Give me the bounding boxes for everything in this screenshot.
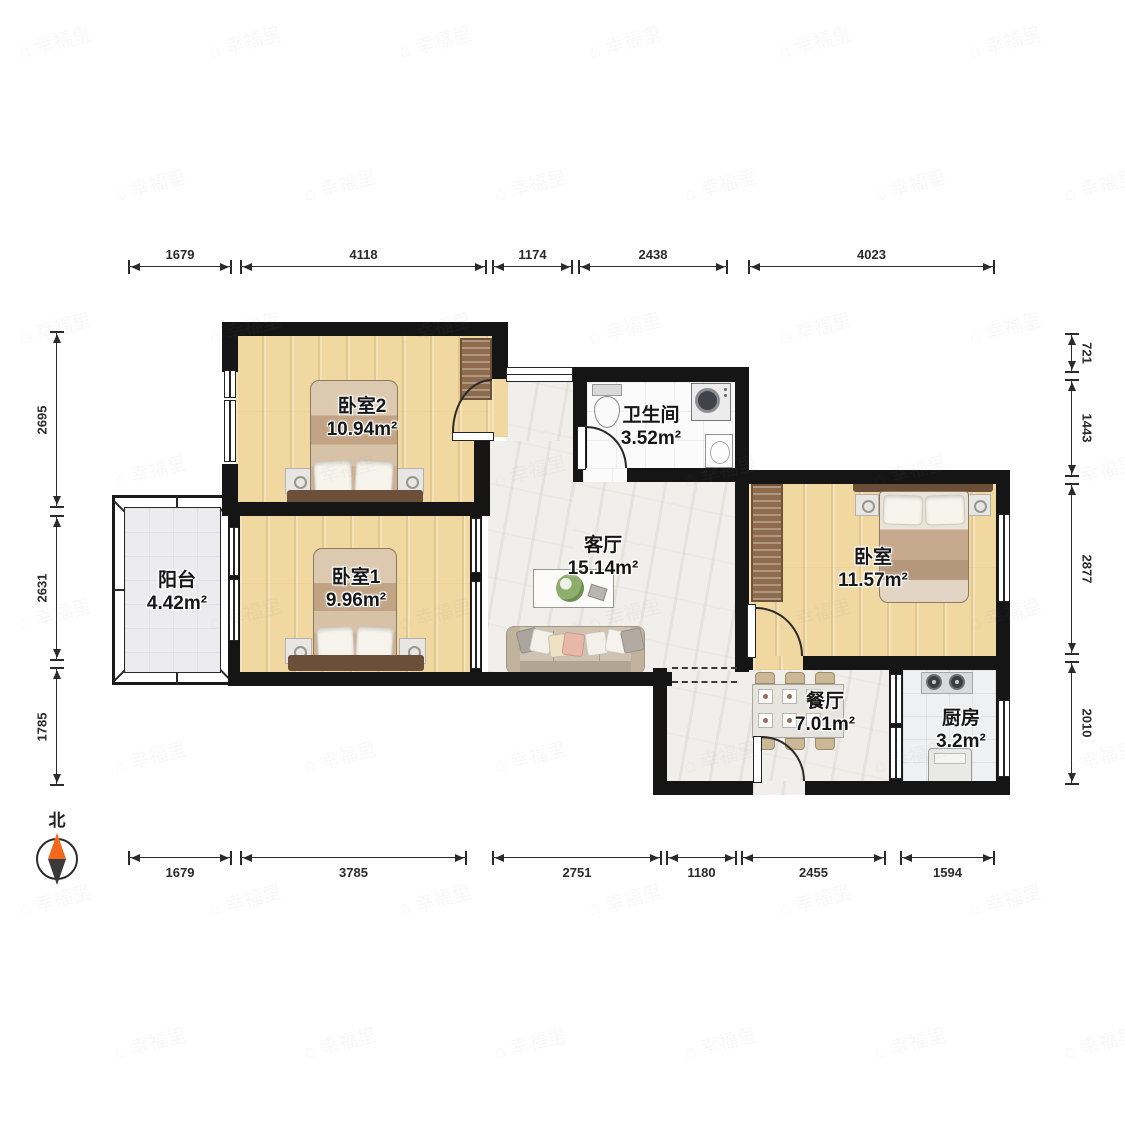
a — [650, 854, 659, 862]
nightstand — [967, 494, 991, 516]
watermark: ⌂ 幸福里 — [16, 591, 94, 635]
dimension-value: 2438 — [578, 247, 728, 262]
room-name: 餐厅 — [795, 690, 855, 713]
t — [230, 260, 232, 274]
room-area: 4.42m² — [147, 592, 207, 615]
line — [494, 857, 660, 858]
room-name: 阳台 — [147, 569, 207, 592]
a — [903, 854, 912, 862]
dining-chair — [755, 672, 775, 684]
line — [1071, 485, 1072, 653]
watermark: ⌂ 幸福里 — [871, 1020, 949, 1064]
window — [224, 400, 236, 462]
room-area: 15.14m² — [568, 557, 639, 580]
window — [229, 527, 239, 576]
t — [578, 260, 580, 274]
a — [475, 263, 484, 271]
dimension-value: 3785 — [240, 865, 467, 880]
sofa-pillow — [562, 632, 586, 658]
dining-chair — [815, 672, 835, 684]
a — [744, 854, 753, 862]
door-leaf — [577, 426, 586, 470]
a — [983, 854, 992, 862]
drum — [695, 388, 720, 413]
t — [50, 331, 64, 333]
t — [993, 851, 995, 865]
a — [131, 854, 140, 862]
t — [50, 515, 64, 517]
line — [242, 266, 485, 267]
a — [581, 263, 590, 271]
toilet — [592, 384, 622, 396]
line — [1071, 663, 1072, 783]
a — [53, 649, 61, 658]
wall — [573, 367, 747, 382]
watermark: ⌂ 幸福里 — [586, 305, 664, 349]
watermark: ⌂ 幸福里 — [111, 734, 189, 778]
t — [735, 851, 737, 865]
t — [900, 851, 902, 865]
t — [128, 851, 130, 865]
watermark: ⌂ 幸福里 — [681, 162, 759, 206]
a — [669, 854, 678, 862]
watermark: ⌂ 幸福里 — [776, 305, 854, 349]
line — [902, 857, 993, 858]
thresh — [753, 656, 803, 670]
a — [220, 263, 229, 271]
a — [53, 334, 61, 343]
door-leaf — [452, 432, 494, 441]
wall — [222, 502, 488, 516]
room-name: 卫生间 — [621, 404, 681, 427]
pillow — [882, 494, 923, 525]
a — [53, 518, 61, 527]
open-passage — [672, 667, 737, 669]
a — [1068, 664, 1076, 673]
window — [998, 700, 1010, 777]
wall — [627, 468, 749, 482]
wall — [222, 322, 508, 336]
sofa-pillow — [620, 627, 645, 654]
t — [50, 659, 64, 661]
line — [130, 857, 230, 858]
watermark: ⌂ 幸福里 — [301, 162, 379, 206]
bathroom-sink — [705, 434, 733, 468]
dimension-value: 1443 — [1080, 414, 1095, 443]
watermark: ⌂ 幸福里 — [966, 877, 1044, 921]
room-label-dining: 餐厅7.01m² — [795, 690, 855, 736]
entry-door-leaf — [753, 736, 762, 783]
watermark: ⌂ 幸福里 — [396, 877, 474, 921]
dimension-value: 1679 — [128, 247, 232, 262]
line — [56, 333, 57, 506]
t — [884, 851, 886, 865]
dimension-value: 2455 — [741, 865, 886, 880]
t — [50, 784, 64, 786]
a — [455, 854, 464, 862]
floorplan: 北 卧室210.94m²卧室19.96m²阳台4.42m²客厅15.14m²卫生… — [0, 0, 1125, 1125]
room-name: 厨房 — [936, 707, 986, 730]
room-area: 3.52m² — [621, 427, 681, 450]
room-label-bathroom: 卫生间3.52m² — [621, 404, 681, 450]
dining-chair — [785, 672, 805, 684]
dot — [724, 388, 727, 391]
room-name: 卧室 — [838, 546, 908, 569]
open-passage — [672, 681, 737, 683]
line — [743, 857, 884, 858]
dimension-value: 4118 — [240, 247, 487, 262]
wall — [735, 470, 1010, 484]
dimension-value: 1594 — [900, 865, 995, 880]
a — [1068, 382, 1076, 391]
a — [53, 774, 61, 783]
watermark: ⌂ 幸福里 — [491, 162, 569, 206]
room-label-bedroom2: 卧室210.94m² — [327, 395, 398, 441]
door-leaf — [747, 604, 756, 658]
room-area: 3.2m² — [936, 730, 986, 753]
watermark: ⌂ 幸福里 — [16, 19, 94, 63]
a — [983, 263, 992, 271]
wall — [222, 336, 238, 372]
thresh — [583, 468, 627, 482]
thresh — [492, 379, 508, 437]
dimension-value: 1174 — [492, 247, 573, 262]
window — [224, 370, 236, 398]
t — [666, 851, 668, 865]
room-label-living: 客厅15.14m² — [568, 534, 639, 580]
t — [492, 260, 494, 274]
a — [220, 854, 229, 862]
line — [580, 266, 726, 267]
line — [242, 857, 465, 858]
window — [471, 581, 481, 669]
a — [1068, 486, 1076, 495]
t — [492, 851, 494, 865]
watermark: ⌂ 幸福里 — [111, 162, 189, 206]
t — [1065, 371, 1079, 373]
a — [495, 263, 504, 271]
watermark: ⌂ 幸福里 — [966, 19, 1044, 63]
a — [243, 854, 252, 862]
pillow — [924, 494, 965, 525]
t — [1065, 661, 1079, 663]
room-name: 卧室1 — [326, 566, 386, 589]
plate — [758, 689, 773, 704]
stove-burner — [949, 674, 965, 690]
wall — [653, 668, 667, 795]
watermark: ⌂ 幸福里 — [776, 877, 854, 921]
a — [725, 854, 734, 862]
t — [230, 851, 232, 865]
room-area: 7.01m² — [795, 713, 855, 736]
watermark: ⌂ 幸福里 — [1061, 1020, 1125, 1064]
dimension-value: 2631 — [35, 574, 50, 603]
a — [1068, 643, 1076, 652]
dining-chair — [815, 738, 835, 750]
t — [1065, 475, 1079, 477]
dimension-value: 2877 — [1080, 555, 1095, 584]
window — [506, 367, 573, 382]
room-name: 客厅 — [568, 534, 639, 557]
plate — [758, 713, 773, 728]
wardrobe — [751, 484, 783, 602]
t — [485, 260, 487, 274]
headboard — [288, 655, 424, 671]
line — [130, 266, 230, 267]
a — [874, 854, 883, 862]
watermark: ⌂ 幸福里 — [111, 1020, 189, 1064]
dot — [724, 394, 727, 397]
watermark: ⌂ 幸福里 — [491, 1020, 569, 1064]
watermark: ⌂ 幸福里 — [396, 19, 474, 63]
t — [748, 260, 750, 274]
a — [53, 496, 61, 505]
t — [726, 260, 728, 274]
t — [1065, 483, 1079, 485]
t — [1065, 379, 1079, 381]
t — [240, 851, 242, 865]
bline — [176, 673, 178, 684]
watermark: ⌂ 幸福里 — [206, 19, 284, 63]
compass-needle-south — [48, 859, 66, 885]
t — [50, 667, 64, 669]
watermark: ⌂ 幸福里 — [586, 19, 664, 63]
a — [131, 263, 140, 271]
room-label-balcony: 阳台4.42m² — [147, 569, 207, 615]
nightstand — [855, 494, 879, 516]
wall — [474, 437, 490, 516]
room-label-bedroom1: 卧室19.96m² — [326, 566, 386, 612]
wall — [573, 468, 583, 482]
room-area: 11.57m² — [838, 569, 908, 592]
t — [240, 260, 242, 274]
t — [571, 260, 573, 274]
t — [1065, 783, 1079, 785]
wall — [735, 656, 753, 670]
dimension-value: 1679 — [128, 865, 232, 880]
sliding-door — [890, 674, 902, 724]
watermark: ⌂ 幸福里 — [776, 19, 854, 63]
room-area: 10.94m² — [327, 418, 398, 441]
wall — [735, 367, 749, 484]
washing-machine — [691, 383, 731, 421]
a — [1068, 361, 1076, 370]
window — [998, 514, 1010, 602]
a — [561, 263, 570, 271]
line — [494, 266, 571, 267]
t — [660, 851, 662, 865]
dimension-value: 1785 — [35, 712, 50, 741]
watermark: ⌂ 幸福里 — [301, 734, 379, 778]
line — [56, 517, 57, 659]
watermark: ⌂ 幸福里 — [871, 162, 949, 206]
window — [471, 518, 481, 573]
watermark: ⌂ 幸福里 — [111, 448, 189, 492]
a — [751, 263, 760, 271]
a — [716, 263, 725, 271]
t — [993, 260, 995, 274]
a — [495, 854, 504, 862]
line — [750, 266, 993, 267]
room-label-kitchen: 厨房3.2m² — [936, 707, 986, 753]
a — [1068, 465, 1076, 474]
t — [465, 851, 467, 865]
watermark: ⌂ 幸福里 — [206, 877, 284, 921]
t — [1065, 653, 1079, 655]
a — [243, 263, 252, 271]
floorplan-canvas: 北 卧室210.94m²卧室19.96m²阳台4.42m²客厅15.14m²卫生… — [0, 0, 1125, 1125]
bline — [113, 589, 124, 591]
room-name: 卧室2 — [327, 395, 398, 418]
compass-needle-north — [48, 833, 66, 859]
a — [1068, 336, 1076, 345]
north-label: 北 — [49, 806, 66, 831]
dimension-value: 2695 — [35, 405, 50, 434]
t — [1065, 333, 1079, 335]
dimension-value: 4023 — [748, 247, 995, 262]
room-label-bedroom-r: 卧室11.57m² — [838, 546, 908, 592]
stove-burner — [926, 674, 942, 690]
window — [229, 579, 239, 641]
wall — [228, 672, 672, 686]
t — [741, 851, 743, 865]
dimension-value: 2010 — [1080, 709, 1095, 738]
room-area: 9.96m² — [326, 589, 386, 612]
dimension-value: 1180 — [666, 865, 737, 880]
a — [53, 670, 61, 679]
dimension-value: 721 — [1080, 342, 1095, 364]
sliding-door — [890, 727, 902, 779]
line — [1071, 381, 1072, 475]
watermark: ⌂ 幸福里 — [966, 305, 1044, 349]
a — [1068, 773, 1076, 782]
wall — [805, 781, 1010, 795]
watermark: ⌂ 幸福里 — [491, 734, 569, 778]
thresh — [753, 781, 805, 795]
t — [128, 260, 130, 274]
watermark: ⌂ 幸福里 — [586, 877, 664, 921]
bline — [176, 496, 178, 507]
watermark: ⌂ 幸福里 — [301, 1020, 379, 1064]
wall — [803, 656, 1010, 670]
watermark: ⌂ 幸福里 — [681, 1020, 759, 1064]
wall — [653, 781, 753, 795]
dimension-value: 2751 — [492, 865, 662, 880]
watermark: ⌂ 幸福里 — [1061, 162, 1125, 206]
line — [56, 669, 57, 784]
t — [50, 506, 64, 508]
